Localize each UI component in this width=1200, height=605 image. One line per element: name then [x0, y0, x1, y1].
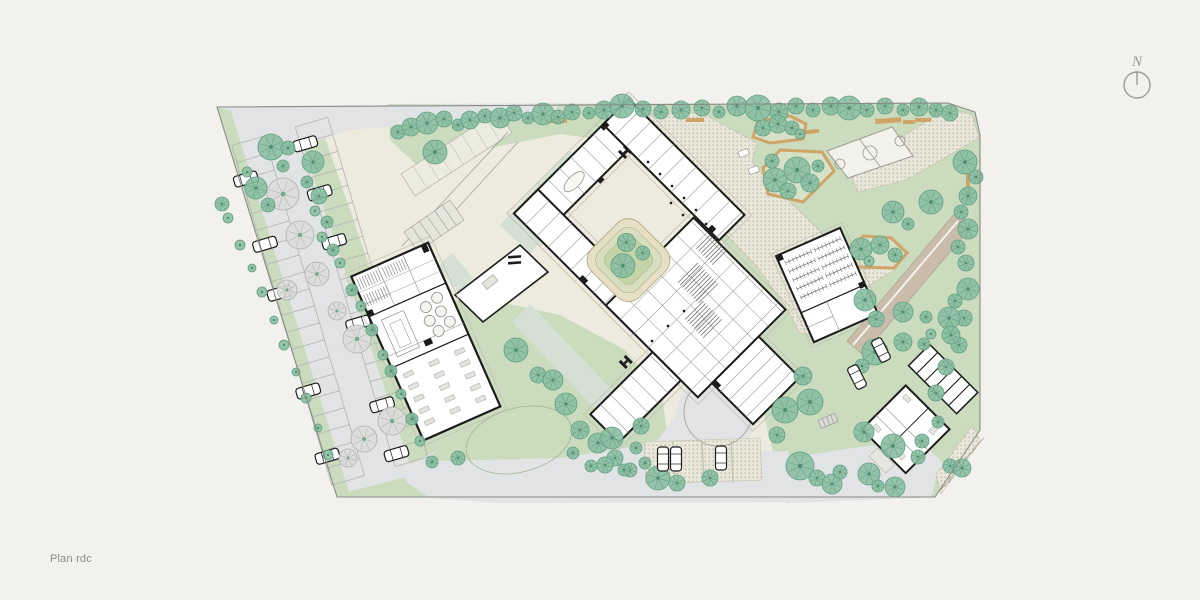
tree: [335, 258, 345, 268]
tree: [415, 436, 425, 446]
tree: [346, 284, 358, 296]
tree: [772, 397, 798, 423]
tree: [926, 329, 936, 339]
tree: [769, 115, 787, 133]
bench: [915, 118, 931, 122]
tree: [356, 301, 366, 311]
tree: [928, 385, 944, 401]
tree: [597, 457, 613, 473]
tree: [585, 460, 597, 472]
tree: [279, 340, 289, 350]
tree: [532, 103, 554, 125]
plan-title-label: Plan rdc: [50, 553, 92, 565]
tree: [959, 187, 977, 205]
tree: [780, 183, 796, 199]
tree: [571, 421, 589, 439]
tree: [633, 418, 649, 434]
tree: [328, 302, 346, 320]
tree: [915, 434, 929, 448]
tree: [894, 333, 912, 351]
tree: [788, 98, 804, 114]
tree: [583, 107, 595, 119]
tree: [451, 451, 465, 465]
tree: [929, 103, 943, 117]
tree: [794, 367, 812, 385]
tree: [258, 134, 284, 160]
tree: [277, 280, 297, 300]
car: [658, 447, 669, 471]
tree: [305, 262, 329, 286]
tree: [630, 442, 642, 454]
tree: [555, 393, 577, 415]
tree: [942, 105, 958, 121]
tree: [958, 255, 974, 271]
tree: [672, 101, 690, 119]
tree: [311, 188, 327, 204]
tree: [795, 129, 805, 139]
tree: [938, 307, 960, 329]
tree: [564, 104, 580, 120]
tree: [601, 427, 623, 449]
tree: [261, 198, 275, 212]
north-letter: N: [1131, 54, 1143, 70]
tree: [951, 240, 965, 254]
tree: [755, 120, 771, 136]
tree: [436, 111, 452, 127]
tree: [919, 190, 943, 214]
tree: [872, 480, 884, 492]
tree: [897, 104, 909, 116]
tree: [257, 287, 267, 297]
tree: [920, 311, 932, 323]
tree: [281, 141, 295, 155]
tree: [911, 450, 925, 464]
north-arrow: N: [1124, 54, 1150, 98]
tree: [958, 219, 978, 239]
tree: [877, 98, 893, 114]
tree: [765, 154, 779, 168]
tree: [378, 407, 406, 435]
tree: [235, 240, 245, 250]
tree: [396, 389, 406, 399]
tree: [327, 244, 339, 256]
tree: [864, 256, 874, 266]
tree: [669, 475, 685, 491]
tree: [854, 422, 874, 442]
site-plan-canvas: N: [0, 0, 1200, 605]
tree: [769, 427, 785, 443]
tree: [321, 216, 333, 228]
bench: [686, 118, 704, 122]
tree: [833, 465, 847, 479]
tree: [938, 359, 954, 375]
tree: [385, 365, 397, 377]
tree: [948, 294, 962, 308]
tree: [242, 167, 252, 177]
tree: [797, 389, 823, 415]
tree: [932, 416, 944, 428]
tree: [277, 160, 289, 172]
tree: [426, 456, 438, 468]
bench: [903, 120, 915, 124]
tree: [635, 101, 651, 117]
tree: [860, 103, 874, 117]
tree: [888, 248, 902, 262]
tree: [694, 100, 710, 116]
tree: [504, 338, 528, 362]
tree: [317, 232, 327, 242]
tree: [215, 197, 229, 211]
tree: [248, 264, 256, 272]
tree: [551, 110, 565, 124]
tree: [812, 160, 824, 172]
tree: [639, 457, 651, 469]
tree: [868, 311, 884, 327]
tree: [654, 105, 668, 119]
car: [671, 447, 682, 471]
tree: [893, 302, 913, 322]
tree: [567, 447, 579, 459]
tree: [871, 236, 889, 254]
tree: [461, 111, 479, 129]
tree: [954, 205, 968, 219]
tree: [881, 434, 905, 458]
tree: [378, 350, 388, 360]
tree: [910, 98, 928, 116]
tree: [969, 170, 983, 184]
tree: [882, 201, 904, 223]
tree: [806, 103, 820, 117]
tree: [406, 413, 418, 425]
tree: [245, 177, 267, 199]
tree: [351, 426, 377, 452]
tree: [713, 106, 725, 118]
tree: [885, 477, 905, 497]
tree: [854, 289, 876, 311]
tree: [423, 140, 447, 164]
tree: [223, 213, 233, 223]
tree: [416, 112, 438, 134]
tree: [506, 105, 522, 121]
car: [716, 446, 727, 470]
tree: [918, 338, 930, 350]
tree: [702, 470, 718, 486]
tree: [301, 176, 313, 188]
tree: [610, 94, 634, 118]
architectural-site-plan: N Plan rdc: [0, 0, 1200, 600]
tree: [618, 464, 630, 476]
tree: [310, 206, 320, 216]
tree: [837, 96, 861, 120]
tree: [953, 459, 971, 477]
tree: [727, 96, 747, 116]
tree: [942, 326, 960, 344]
tree: [302, 151, 324, 173]
tree: [270, 316, 278, 324]
tree: [286, 221, 314, 249]
tree: [801, 174, 819, 192]
tree: [902, 218, 914, 230]
tree: [543, 370, 563, 390]
tree: [366, 324, 378, 336]
tree: [339, 449, 357, 467]
tree: [745, 95, 771, 121]
